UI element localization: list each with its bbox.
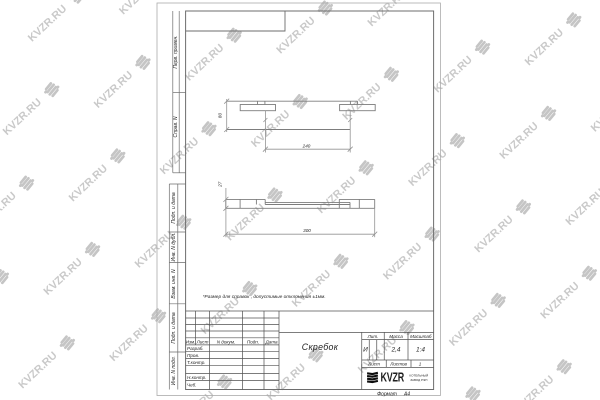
svg-text:80: 80 <box>218 113 223 119</box>
svg-text:Лит.: Лит. <box>367 334 379 339</box>
svg-text:Взам. инв. N: Взам. инв. N <box>171 269 177 299</box>
svg-text:1:4: 1:4 <box>416 347 425 354</box>
svg-text:Лист: Лист <box>367 362 380 367</box>
svg-text:Скребок: Скребок <box>302 342 339 352</box>
svg-text:N докум.: N докум. <box>217 339 236 344</box>
svg-text:Н.контр.: Н.контр. <box>187 375 206 380</box>
svg-text:А4: А4 <box>403 391 410 397</box>
svg-text:Масса: Масса <box>389 334 403 339</box>
svg-text:240: 240 <box>302 144 311 149</box>
svg-text:Пров.: Пров. <box>187 353 199 358</box>
svg-text:Перв. примен.: Перв. примен. <box>173 35 179 68</box>
svg-text:Инв. N подл.: Инв. N подл. <box>171 356 177 385</box>
svg-text:Дата: Дата <box>264 339 278 344</box>
svg-text:ЗАВОД РЭП: ЗАВОД РЭП <box>410 378 427 382</box>
svg-text:Лист: Лист <box>196 339 209 344</box>
svg-text:KVZR: KVZR <box>381 371 405 385</box>
svg-text:Формат: Формат <box>377 391 397 397</box>
svg-text:Подп. и дата: Подп. и дата <box>171 312 177 344</box>
svg-text:Справ. N: Справ. N <box>173 116 179 137</box>
svg-text:300: 300 <box>303 228 311 233</box>
svg-text:Изм.: Изм. <box>186 339 196 344</box>
svg-text:Т.контр.: Т.контр. <box>187 360 206 365</box>
svg-text:Подп. и дата: Подп. и дата <box>171 192 177 224</box>
svg-text:Листов: Листов <box>389 362 407 367</box>
svg-text:Подп.: Подп. <box>247 339 259 344</box>
svg-text:*Размер для справок , допустим: *Размер для справок , допустимые отклоне… <box>203 294 326 300</box>
svg-text:1: 1 <box>419 362 422 367</box>
svg-text:Масштаб: Масштаб <box>410 334 432 339</box>
svg-text:27: 27 <box>218 181 223 188</box>
svg-text:И: И <box>363 347 368 354</box>
svg-text:Разраб.: Разраб. <box>187 346 204 351</box>
svg-text:2,4: 2,4 <box>390 347 400 354</box>
svg-text:Инв. N дубл.: Инв. N дубл. <box>171 233 177 262</box>
svg-text:Чеб.: Чеб. <box>187 382 197 387</box>
